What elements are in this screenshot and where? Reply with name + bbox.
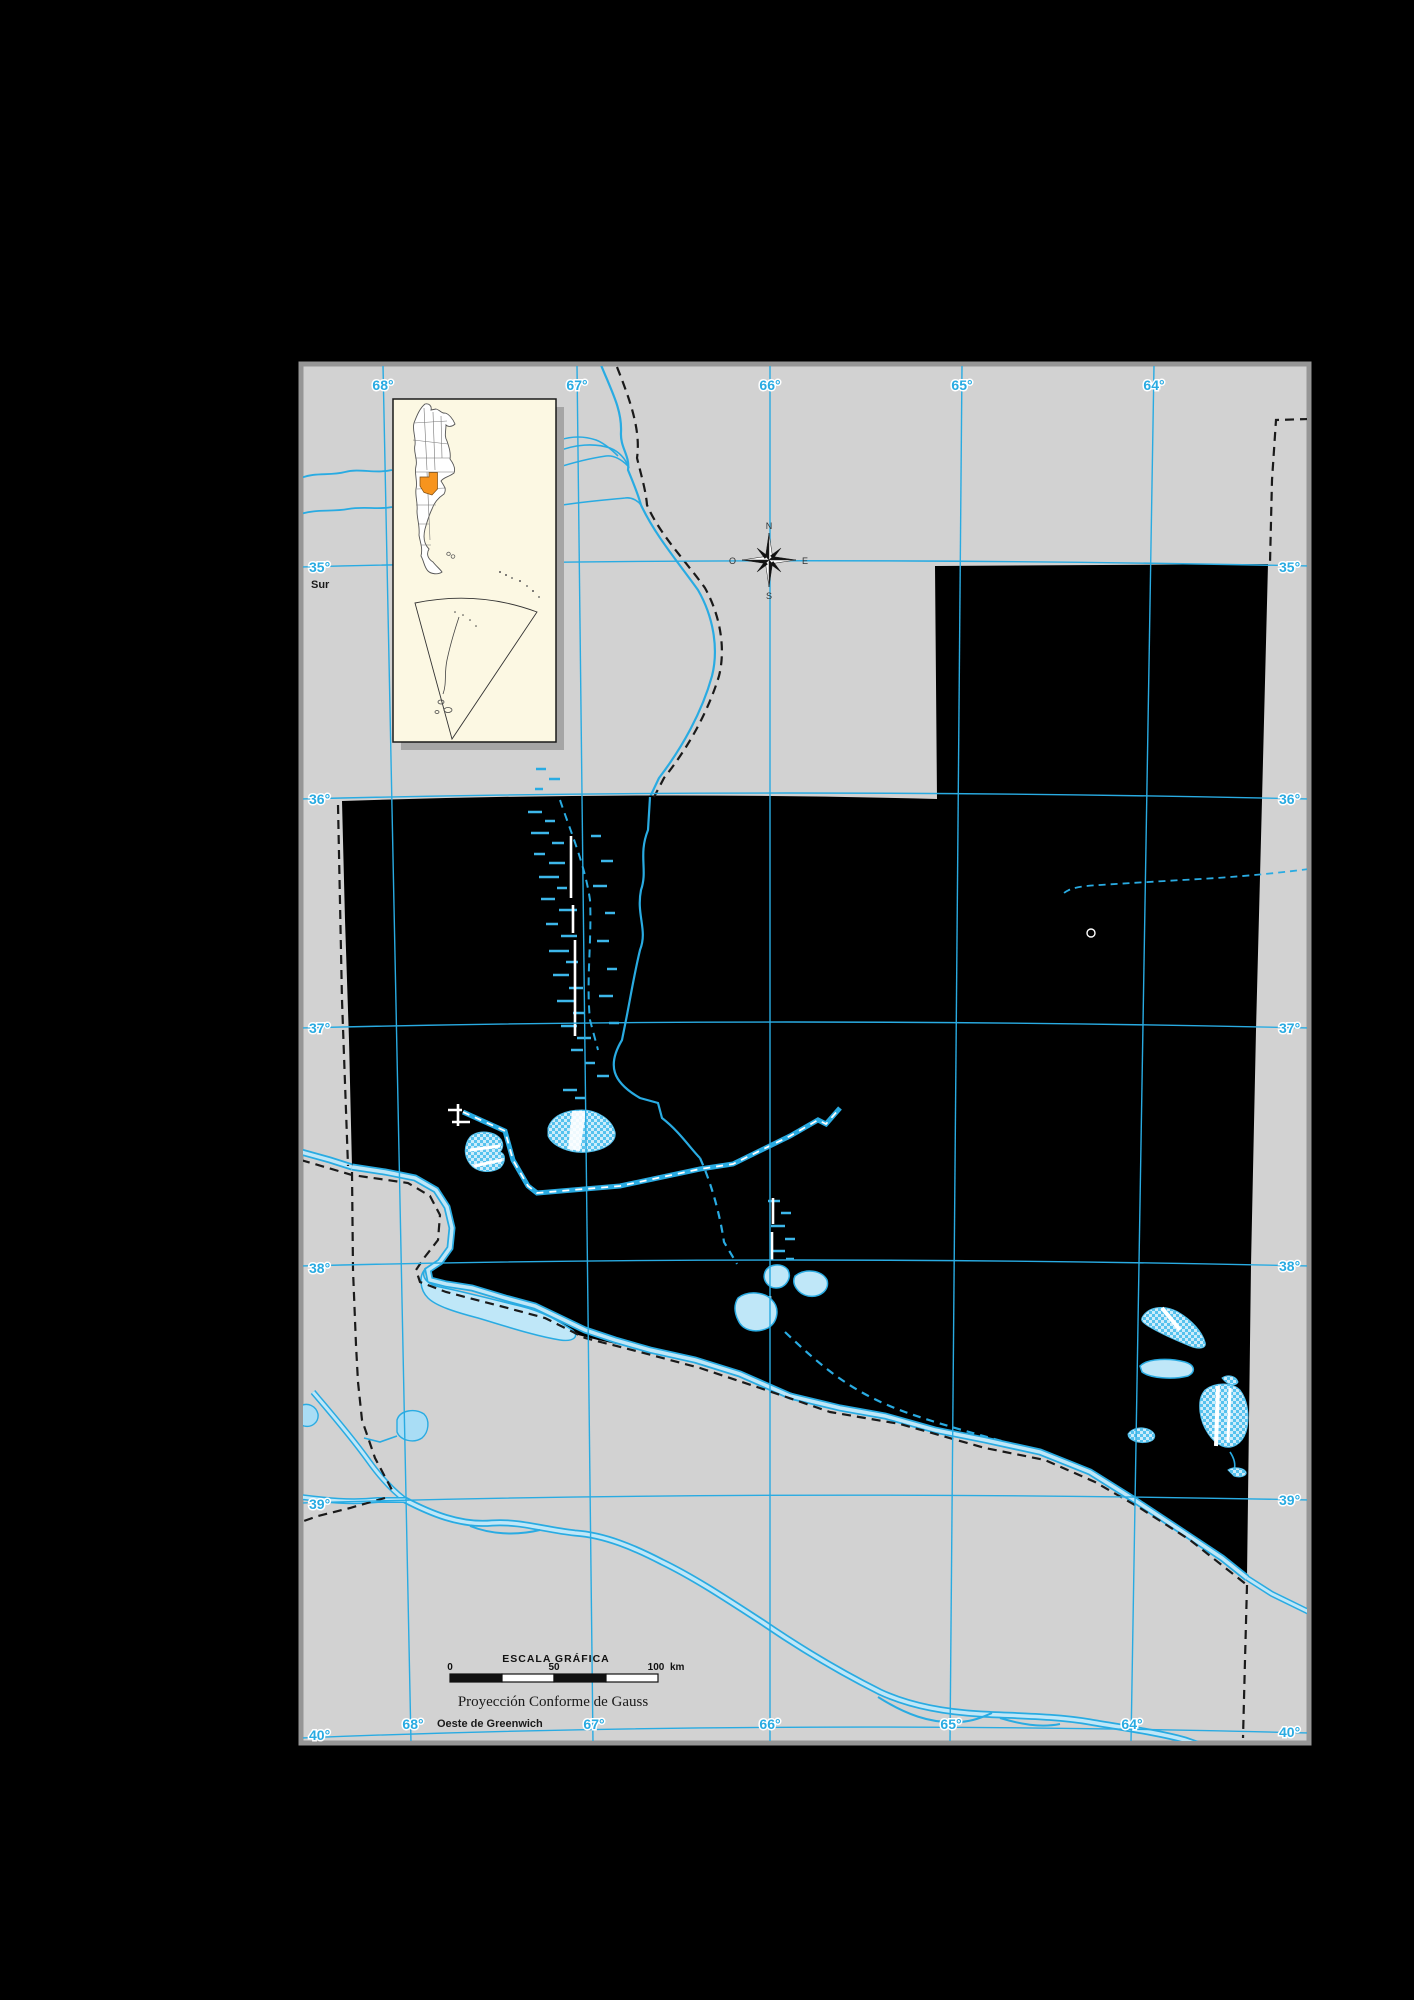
- lon-top-67: 67°: [566, 377, 587, 393]
- map-sheet-page: N E S O: [0, 0, 1414, 2000]
- west-of-greenwich-label: Oeste de Greenwich: [437, 1718, 543, 1730]
- lat-left-35: 35°: [309, 559, 330, 575]
- scale-bar-segments: [450, 1674, 658, 1682]
- scale-tick-0: 0: [447, 1662, 453, 1673]
- south-hemisphere-label: Sur: [311, 579, 330, 591]
- scale-tick-100: 100: [648, 1662, 665, 1673]
- lat-right-35: 35°: [1279, 559, 1300, 575]
- lat-right-39: 39°: [1279, 1492, 1300, 1508]
- lat-right-36: 36°: [1279, 791, 1300, 807]
- projection-label: Proyección Conforme de Gauss: [458, 1694, 649, 1710]
- inset-argentina-map: [393, 399, 564, 750]
- lon-top-66: 66°: [759, 377, 780, 393]
- lat-left-40: 40°: [309, 1727, 330, 1743]
- lat-right-37: 37°: [1279, 1020, 1300, 1036]
- lon-bottom-64: 64°: [1121, 1716, 1142, 1732]
- lat-left-37: 37°: [309, 1020, 330, 1036]
- la-pampa-map: N E S O: [0, 0, 1414, 2000]
- lon-bottom-65: 65°: [940, 1716, 961, 1732]
- lat-right-40: 40°: [1279, 1724, 1300, 1740]
- lat-right-38: 38°: [1279, 1258, 1300, 1274]
- lon-bottom-68: 68°: [402, 1716, 423, 1732]
- compass-e: E: [802, 556, 808, 566]
- compass-n: N: [766, 521, 773, 531]
- lon-bottom-67: 67°: [583, 1716, 604, 1732]
- compass-s: S: [766, 591, 772, 601]
- lat-left-39: 39°: [309, 1496, 330, 1512]
- compass-o: O: [729, 556, 736, 566]
- lon-bottom-66: 66°: [759, 1716, 780, 1732]
- lat-left-36: 36°: [309, 791, 330, 807]
- scale-tick-50: 50: [548, 1662, 560, 1673]
- lat-left-38: 38°: [309, 1260, 330, 1276]
- lon-top-68: 68°: [372, 377, 393, 393]
- lake-pellegrini: [397, 1411, 428, 1441]
- lon-top-64: 64°: [1143, 377, 1164, 393]
- scale-unit: km: [670, 1662, 685, 1673]
- lon-top-65: 65°: [951, 377, 972, 393]
